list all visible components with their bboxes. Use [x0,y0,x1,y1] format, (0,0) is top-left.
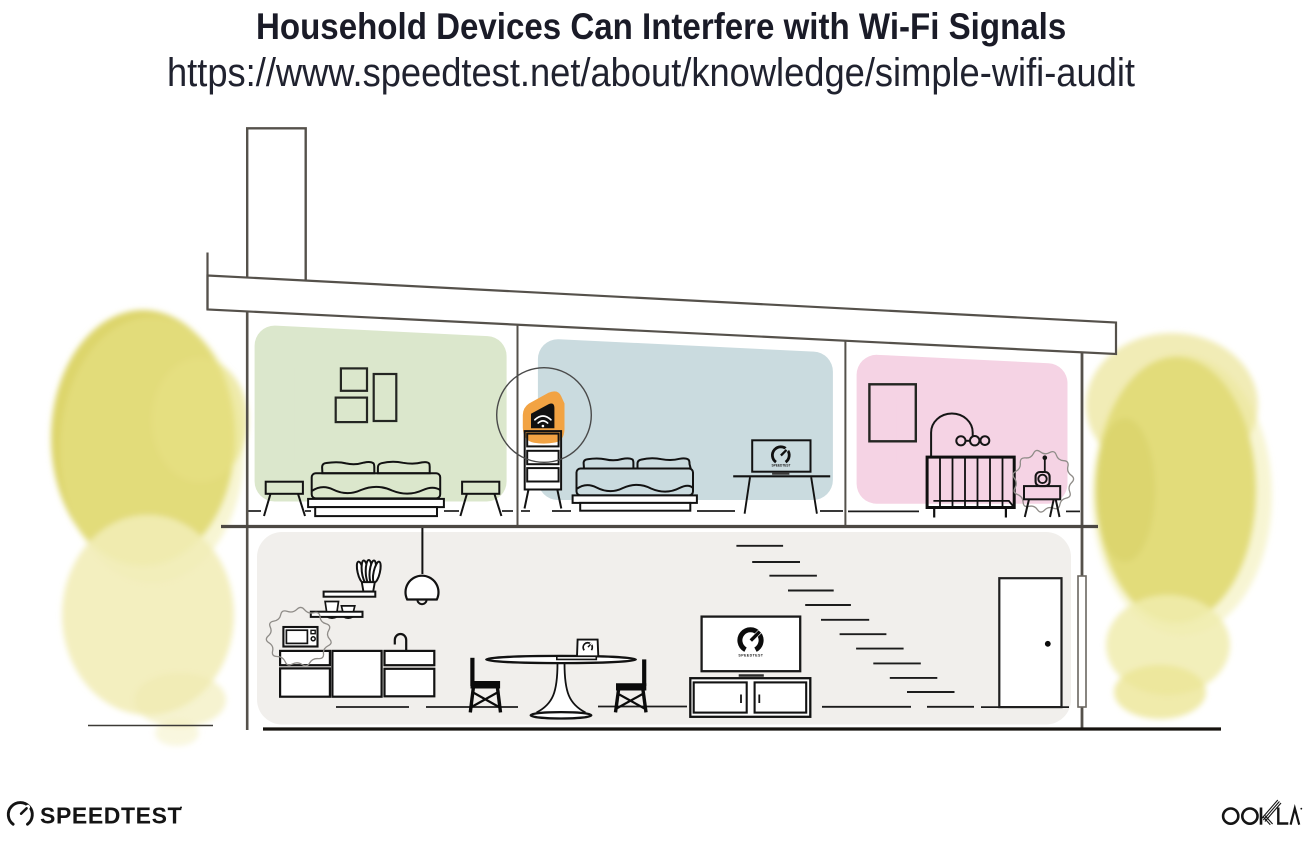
svg-text:SPEEDTEST: SPEEDTEST [40,802,182,828]
svg-text:SPEEDTEST: SPEEDTEST [772,464,791,468]
svg-text:SPEEDTEST: SPEEDTEST [738,653,763,657]
